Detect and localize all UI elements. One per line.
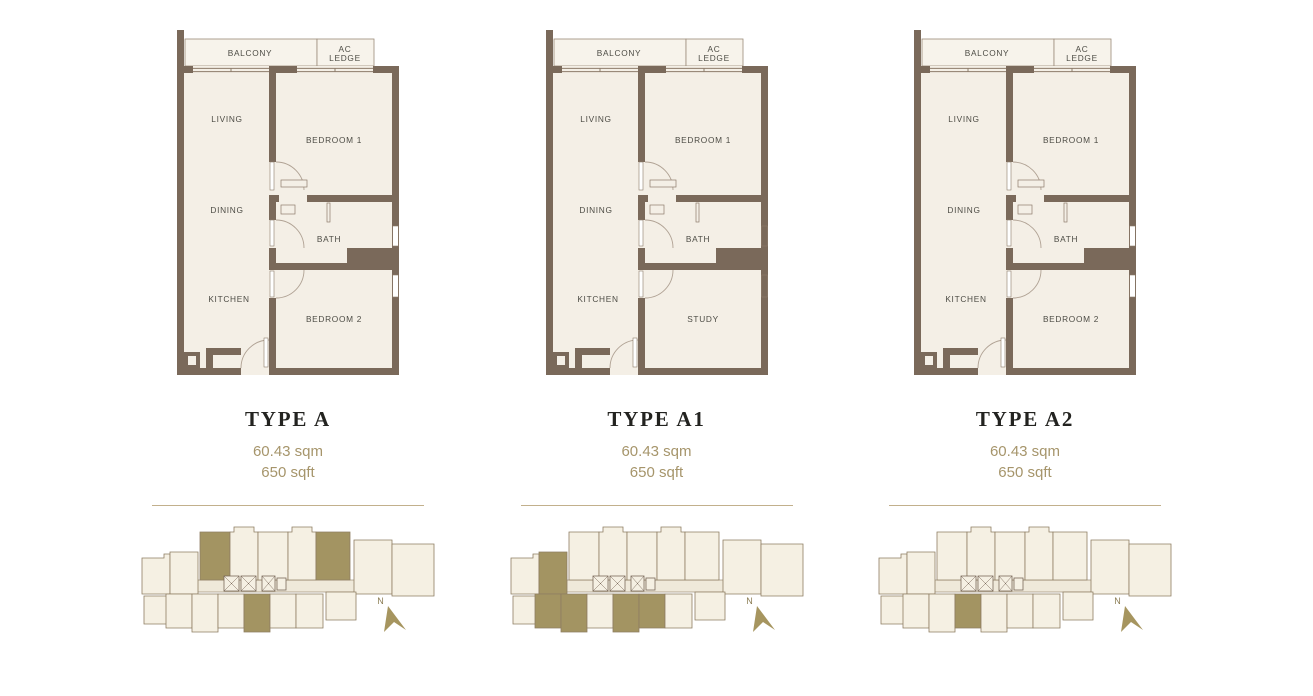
room-label-room2: STUDY [687,314,719,324]
floorplan-walls [546,30,768,375]
floorplan-walls [177,30,399,375]
key-plan: N [875,518,1175,642]
plan-title: TYPE A [245,407,331,432]
plan-title: TYPE A2 [976,407,1074,432]
north-arrow: N [1114,596,1143,632]
room-label-ac-ledge: LEDGE [329,53,361,63]
room-label-living: LIVING [211,114,242,124]
room-label-living: LIVING [948,114,979,124]
area-sqft: 650 sqft [990,462,1060,483]
keyplan-core-group [593,576,655,591]
room-label-bedroom1: BEDROOM 1 [1043,135,1099,145]
room-label-dining: DINING [210,205,243,215]
panel-type-a1: BALCONY AC LEDGE LIVING BEDROOM 1 DINING… [487,30,827,642]
plan-area: 60.43 sqm 650 sqft [253,441,323,483]
room-label-balcony: BALCONY [596,48,641,58]
room-label-bedroom1: BEDROOM 1 [674,135,730,145]
area-sqm: 60.43 sqm [990,441,1060,462]
room-label-bath: BATH [685,234,709,244]
keyplan-core-group [224,576,286,591]
room-label-living: LIVING [580,114,611,124]
floorplan-type-a: BALCONY AC LEDGE LIVING BEDROOM 1 DINING… [177,30,399,375]
plan-title: TYPE A1 [607,407,705,432]
room-label-kitchen: KITCHEN [945,294,986,304]
room-label-room2: BEDROOM 2 [1043,314,1099,324]
floorplan-type-a2: BALCONY AC LEDGE LIVING BEDROOM 1 DINING… [914,30,1136,375]
panel-type-a2: BALCONY AC LEDGE LIVING BEDROOM 1 DINING… [855,30,1195,642]
area-sqft: 650 sqft [253,462,323,483]
room-label-bath: BATH [317,234,341,244]
area-sqft: 650 sqft [621,462,691,483]
north-label: N [1114,596,1122,606]
divider-line [889,505,1161,506]
floorplan-type-a1: BALCONY AC LEDGE LIVING BEDROOM 1 DINING… [546,30,768,375]
north-arrow: N [377,596,406,632]
divider-line [152,505,424,506]
key-plan: N [138,518,438,642]
room-label-bedroom1: BEDROOM 1 [306,135,362,145]
plan-area: 60.43 sqm 650 sqft [990,441,1060,483]
keyplan-core-group [961,576,1023,591]
north-arrow: N [746,596,775,632]
floorplan-panels-row: BALCONY AC LEDGE LIVING BEDROOM 1 DINING… [0,0,1313,642]
floorplan-walls [914,30,1136,375]
room-label-room2: BEDROOM 2 [306,314,362,324]
key-plan: N [507,518,807,642]
north-arrow-icon [1121,606,1143,632]
room-label-dining: DINING [947,205,980,215]
area-sqm: 60.43 sqm [253,441,323,462]
room-label-ac-ledge: LEDGE [1066,53,1098,63]
north-arrow-icon [753,606,775,632]
north-label: N [746,596,754,606]
plan-area: 60.43 sqm 650 sqft [621,441,691,483]
room-label-kitchen: KITCHEN [208,294,249,304]
north-label: N [377,596,385,606]
room-label-bath: BATH [1054,234,1078,244]
room-label-balcony: BALCONY [965,48,1010,58]
room-label-ac-ledge: LEDGE [698,53,730,63]
north-arrow-icon [384,606,406,632]
panel-type-a: BALCONY AC LEDGE LIVING BEDROOM 1 DINING… [118,30,458,642]
room-label-kitchen: KITCHEN [577,294,618,304]
room-label-dining: DINING [579,205,612,215]
divider-line [521,505,793,506]
area-sqm: 60.43 sqm [621,441,691,462]
room-label-balcony: BALCONY [228,48,273,58]
